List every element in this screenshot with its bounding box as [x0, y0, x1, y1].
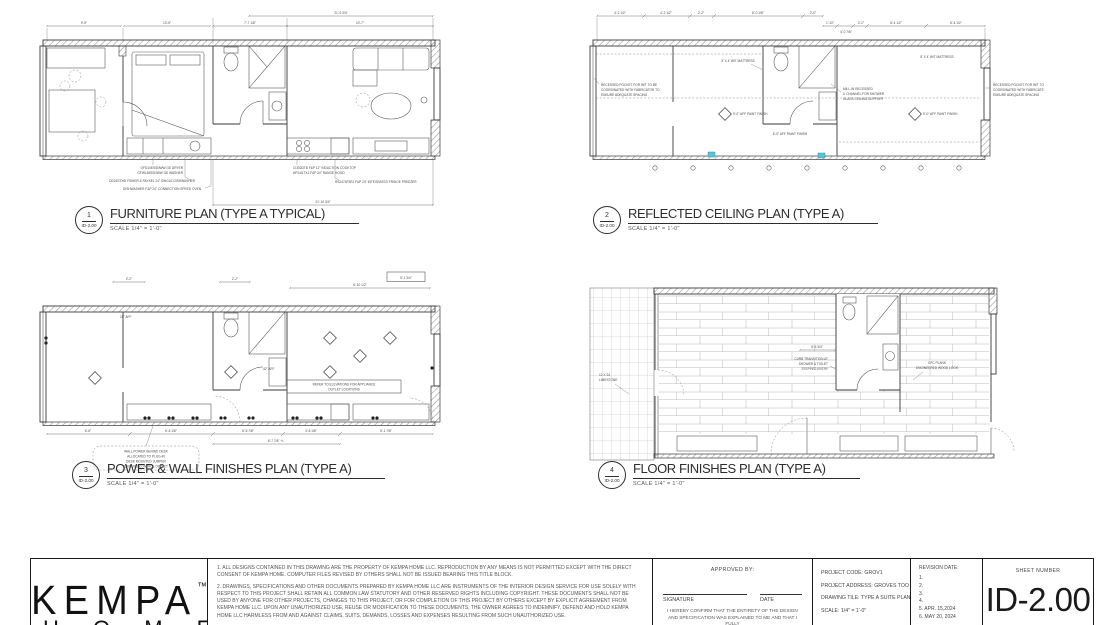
- plan-title-text: FLOOR FINISHES PLAN (TYPE A): [633, 461, 860, 479]
- reflected-ceiling-plan: 4'-2 1/2" 4'-2 1/2" 2'-2" 8'-0 1/8" 2'-0…: [585, 2, 1055, 210]
- callout: SPC PLANK: [928, 361, 947, 365]
- note-line: U CHANNEL FOR SHOWER: [843, 92, 885, 96]
- project-code: PROJECT CODE: GROV1: [821, 567, 902, 580]
- detail-bubble: 1 ID-2.00: [75, 206, 103, 234]
- dim-label: 2'-0": [810, 11, 816, 15]
- dim-label: 4'-2 1/2": [614, 11, 626, 15]
- revision-item: 5. APR. 15,2024: [919, 606, 974, 614]
- ceiling-light-accent: [708, 152, 715, 157]
- plan-title-text: REFLECTED CEILING PLAN (TYPE A): [628, 206, 878, 224]
- callout: 12 X 24: [599, 373, 610, 377]
- revision-label: REVISION DATE:: [919, 565, 974, 571]
- callout: STEPPED ENTRY: [801, 367, 828, 371]
- dim-label: 9'-5": [81, 21, 87, 25]
- revision-item: 2.: [919, 583, 974, 591]
- callout: CURB TRANSITION AT: [794, 357, 828, 361]
- sheet-number: ID-2.00: [983, 581, 1093, 619]
- callout: RS2474F3RJ F&P 24" INTEGRATED FRIDGE FRE…: [335, 180, 417, 184]
- callout: HP24ILTX1 F&P 24" RANGE HOOD: [293, 171, 345, 175]
- detail-sheet-ref: ID-2.00: [604, 477, 619, 484]
- rcp-title: 2 ID-2.00 REFLECTED CEILING PLAN (TYPE A…: [593, 206, 878, 234]
- legal-note-2: 2. DRAWINGS, SPECIFICATIONS AND OTHER DO…: [217, 584, 643, 619]
- note-line: GLASS CEILING SUPPORT: [843, 97, 884, 101]
- note-line: OUTLET LOCATIONS: [328, 388, 360, 392]
- plan-title-text: FURNITURE PLAN (TYPE A TYPICAL): [110, 206, 359, 224]
- note-line: ENSURE ADEQUATE SPACING: [601, 93, 648, 97]
- bathroom-fixtures: [213, 46, 287, 156]
- note-line: 5'-0" AFF PAINT FINISH: [773, 132, 808, 136]
- approval-cell: APPROVED BY: SIGNATURE DATE I HEREBY CON…: [653, 559, 813, 625]
- callout: ENGINEERED WOOD LOOK: [916, 366, 959, 370]
- logo-cell: KEMPA™ H O M E: [31, 559, 208, 625]
- finish-tags: [89, 332, 397, 385]
- plan-scale-text: SCALE 1/4" = 1'-0": [107, 481, 385, 487]
- furniture-plan-drawing: 21'-9 3/4" 9'-5" 13'-5" 7'-7 1/8" 10'-7": [35, 2, 455, 210]
- furniture-plan: 21'-9 3/4" 9'-5" 13'-5" 7'-7 1/8" 10'-7": [35, 2, 455, 210]
- dim-label: 5'-1 3/4": [400, 276, 412, 280]
- dim-label: 2'-2": [698, 11, 704, 15]
- plan-title-text: POWER & WALL FINISHES PLAN (TYPE A): [107, 461, 385, 479]
- dim-label: 4'-2 1/2": [660, 11, 672, 15]
- dim-label: 13'-5": [163, 21, 171, 25]
- appliance-note-box: REFER TO ELEVATIONS FOR APPLIANCE OUTLET…: [287, 380, 401, 393]
- revision-item: 3.: [919, 591, 974, 599]
- note-line: RECESSED POCKET FOR W/T TO BE: [601, 83, 657, 87]
- dim-label: 6'-5 7/8": [242, 429, 254, 433]
- floor-finishes-plan: 12 X 24 LIMESTONE CURB TRANSITION AT SHO…: [585, 272, 1015, 472]
- dim-label: 4'-0 7/8": [840, 30, 852, 34]
- note-line: RECESSED POCKET FOR W/T TO: [993, 83, 1044, 87]
- legal-note-1: 1. ALL DESIGNS CONTAINED IN THIS DRAWING…: [217, 565, 643, 579]
- callout: GFW148SSNWW GE WASHER: [137, 171, 183, 175]
- unit-walls: [40, 306, 440, 426]
- note-line: COORDINATED WITH FABRICATOR TO: [601, 88, 660, 92]
- callout: GFD14ESSNWW GE DRYER: [141, 166, 184, 170]
- note-line: MILL-IN RECESSED: [843, 87, 873, 91]
- sheet-number-label: SHEET NUMBER: [983, 568, 1093, 574]
- dim-label: 1'-10": [826, 21, 834, 25]
- dim-label: 6'-10 1/2": [353, 283, 366, 287]
- aff-label: 18" AFF: [120, 315, 131, 319]
- title-block: KEMPA™ H O M E 1. ALL DESIGNS CONTAINED …: [30, 558, 1094, 625]
- detail-number: 2: [600, 212, 614, 222]
- note-line: COORDINATED WITH FABRICATE: [993, 88, 1044, 92]
- plan-scale-text: SCALE 1/4" = 1'-0": [633, 481, 860, 487]
- callout: DD24STX6I FISHER & PAYKEL 24" SINGLE DIS…: [109, 179, 195, 183]
- dim-label: 7'-7 1/8": [244, 21, 256, 25]
- logo-brand-text: KEMPA: [31, 577, 197, 623]
- dim-label: 21'-9 3/4": [334, 11, 347, 15]
- furniture-plan-title: 1 ID-2.00 FURNITURE PLAN (TYPE A TYPICAL…: [75, 206, 359, 234]
- detail-sheet-ref: ID-2.00: [599, 222, 614, 229]
- bathroom-fixtures: [213, 312, 287, 422]
- floor-finishes-plan-drawing: 12 X 24 LIMESTONE CURB TRANSITION AT SHO…: [585, 272, 1015, 472]
- detail-sheet-ref: ID-2.00: [81, 222, 96, 229]
- callout: CI302DTB F&P 12" INDUCTION COOKTOP: [293, 166, 356, 170]
- detail-number: 3: [79, 467, 93, 477]
- sheet-number-cell: SHEET NUMBER ID-2.00: [983, 559, 1094, 625]
- note-line: ENSURE ADEQUATE SPACING: [993, 93, 1040, 97]
- revision-item: 6. MAY 20, 2024: [919, 614, 974, 622]
- kitchen-counters: [127, 138, 349, 154]
- date-field[interactable]: DATE: [760, 594, 802, 603]
- project-info-cell: PROJECT CODE: GROV1 PROJECT ADDRESS: GRO…: [813, 559, 911, 625]
- note-line: REFER TO ELEVATIONS FOR APPLIANCE: [313, 383, 376, 387]
- dim-lines: 4'-2 1/2" 4'-2 1/2" 2'-2" 8'-0 1/8" 2'-0…: [597, 11, 985, 40]
- legal-notes-cell: 1. ALL DESIGNS CONTAINED IN THIS DRAWING…: [208, 559, 653, 625]
- dim-bottom: 6'-6" 6'-6 1/8" 6'-5 7/8" 3'-8 1/8" 5'-1…: [47, 429, 433, 444]
- detail-bubble: 4 ID-2.00: [598, 461, 626, 489]
- plan-scale-text: SCALE 1/4" = 1'-0": [110, 226, 359, 232]
- dim-label: 3'-8 1/8": [305, 429, 317, 433]
- dim-label: 8'-4 1/2": [890, 21, 902, 25]
- detail-bubble: 3 ID-2.00: [72, 461, 100, 489]
- note-line: 9'-0" AFF PAINT FINISH: [733, 112, 768, 116]
- drawing-scale: SCALE: 1/4" = 1'-0": [821, 605, 902, 618]
- note-line: WALL POWER BEHIND DESK: [124, 450, 169, 454]
- note-line: 9'-0" AFF PAINT FINISH: [923, 112, 958, 116]
- dim-label: 6'-6 1/8": [165, 429, 177, 433]
- kitchen-counters: [677, 436, 977, 451]
- reflected-ceiling-plan-drawing: 4'-2 1/2" 4'-2 1/2" 2'-2" 8'-0 1/8" 2'-0…: [585, 2, 1055, 210]
- dim-label: 8'-4 1/2": [950, 21, 962, 25]
- revision-cell: REVISION DATE: 1. 2. 3. 4. 5. APR. 15,20…: [911, 559, 983, 625]
- callout: DISHWASHER F&P 24" CONNECTION SPEED OVEN: [123, 187, 202, 191]
- aff-label: 42" AFF: [263, 367, 274, 371]
- finish-tag-diamond: [909, 108, 922, 121]
- dim-lines: 21'-9 3/4" 9'-5" 13'-5" 7'-7 1/8" 10'-7": [47, 11, 433, 44]
- plan-scale-text: SCALE 1/4" = 1'-0": [628, 226, 878, 232]
- revision-item: 4.: [919, 598, 974, 606]
- drawing-title: DRAWING TILE: TYPE A SUITE PLANS: [821, 592, 902, 605]
- detail-number: 1: [82, 212, 96, 222]
- project-address: PROJECT ADDRESS: GROVES TOO: [821, 580, 902, 593]
- callout: SHOWER & TOILET: [799, 362, 828, 366]
- callout: LIMESTONE: [599, 378, 617, 382]
- bathroom-fixtures: [763, 46, 837, 156]
- dim-label: 5'-1 7/8": [380, 429, 392, 433]
- unit-walls: [40, 40, 440, 160]
- dim-label: 2'-2": [858, 21, 864, 25]
- power-plan-title: 3 ID-2.00 POWER & WALL FINISHES PLAN (TY…: [72, 461, 385, 489]
- dim-label: 8'-0 1/8": [752, 11, 764, 15]
- dim-label: 10'-7": [356, 21, 364, 25]
- drawing-sheet: 21'-9 3/4" 9'-5" 13'-5" 7'-7 1/8" 10'-7": [0, 0, 1110, 623]
- detail-number: 4: [605, 467, 619, 477]
- kempa-logo: KEMPA™: [31, 566, 208, 621]
- dim-label: 2'-2": [126, 277, 132, 281]
- note-line: 8' X 4' W/T MATTRESS: [920, 55, 953, 59]
- note-line: 5' X 4' W/T MATTRESS: [721, 59, 754, 63]
- floor-plan-title: 4 ID-2.00 FLOOR FINISHES PLAN (TYPE A) S…: [598, 461, 860, 489]
- appliance-callouts: GFD14ESSNWW GE DRYER GFW148SSNWW GE WASH…: [109, 159, 417, 191]
- dim-label: 5'-6 3/4": [811, 345, 823, 349]
- ceiling-light-accent: [818, 153, 825, 158]
- note-line: ALLOCATED TO PLUG-IN: [127, 455, 165, 459]
- dim-lines: 2'-2" 2'-2" 6'-10 1/2" 5'-1 3/4": [113, 272, 430, 288]
- dim-label: 21'-10 3/4": [315, 200, 330, 204]
- approved-by-label: APPROVED BY:: [663, 567, 802, 573]
- revision-item: 1.: [919, 575, 974, 583]
- logo-tm-mark: ™: [197, 581, 206, 592]
- finish-tag-diamond: [719, 108, 732, 121]
- detail-sheet-ref: ID-2.00: [78, 477, 93, 484]
- detail-bubble: 2 ID-2.00: [593, 206, 621, 234]
- approval-confirm-text: I HEREBY CONFIRM THAT THE ENTIRETY OF TH…: [663, 608, 802, 625]
- power-wall-finishes-plan: 2'-2" 2'-2" 6'-10 1/2" 5'-1 3/4": [35, 268, 465, 472]
- dim-label: 6'-6": [85, 429, 91, 433]
- signature-field[interactable]: SIGNATURE: [663, 594, 747, 603]
- dim-label: 6'-7 7/8" +/-: [268, 439, 284, 443]
- dim-label: 2'-2": [232, 277, 238, 281]
- power-wall-finishes-plan-drawing: 2'-2" 2'-2" 6'-10 1/2" 5'-1 3/4": [35, 268, 465, 472]
